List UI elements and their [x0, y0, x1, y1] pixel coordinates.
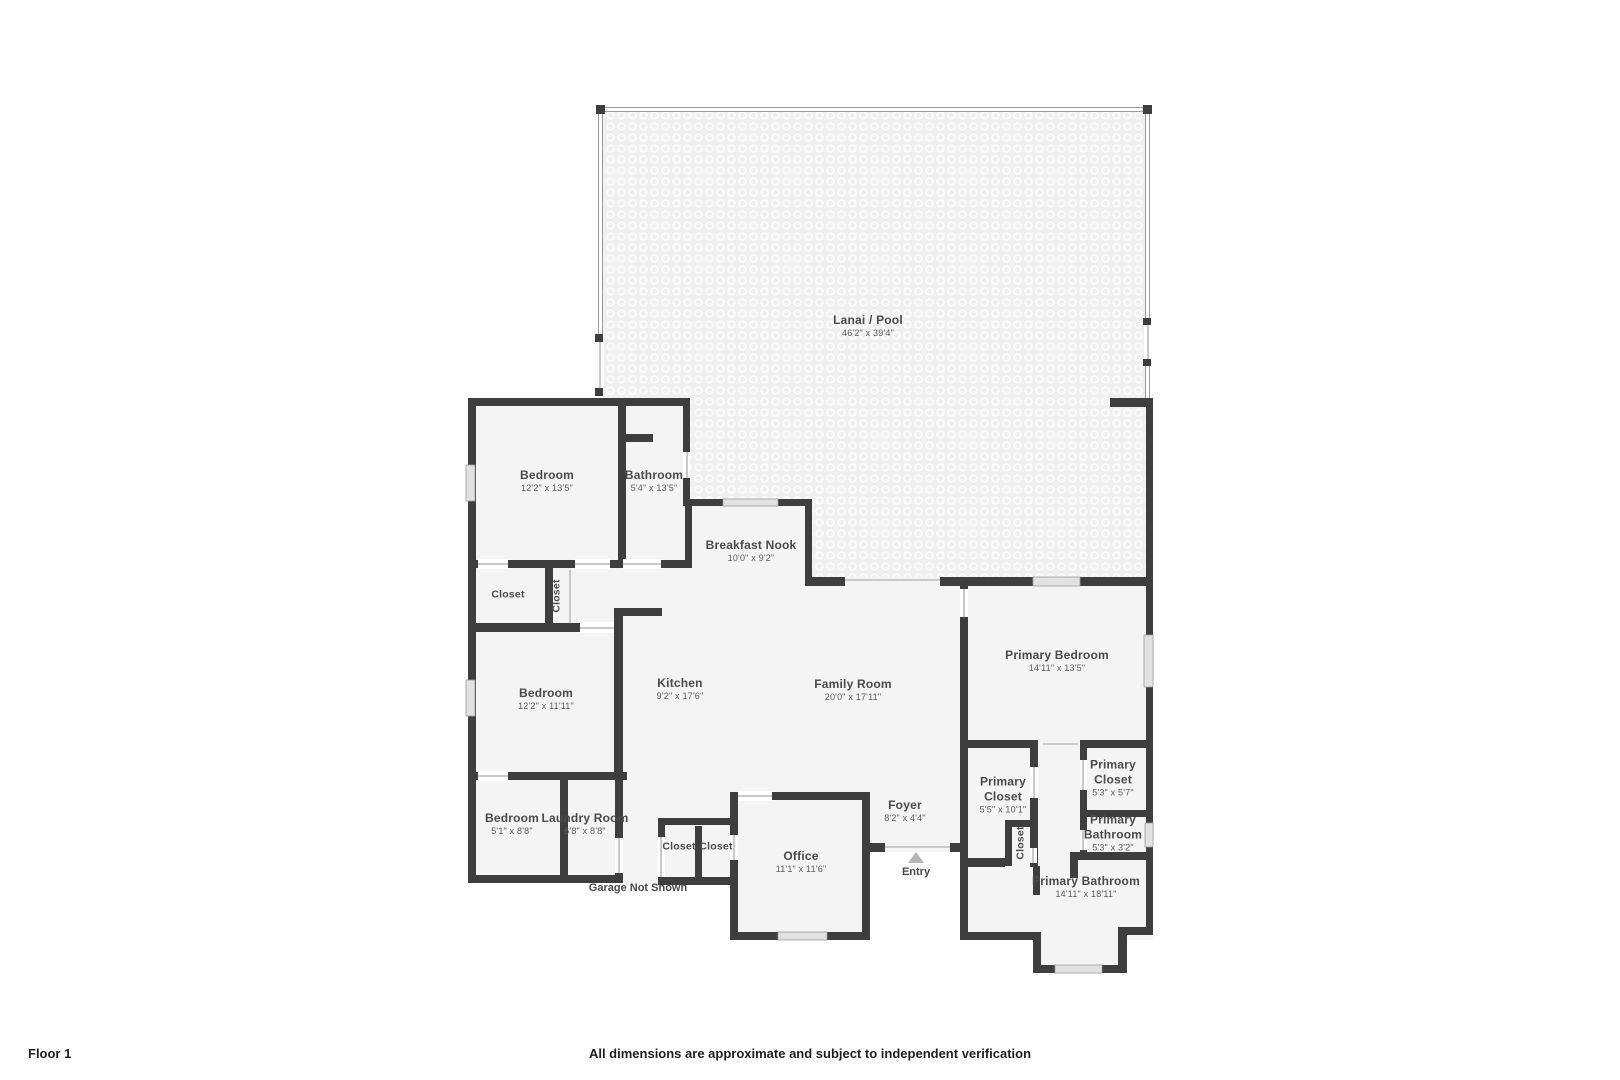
room-name: Lanai / Pool — [833, 313, 903, 328]
room-name: Family Room — [814, 677, 892, 692]
room-label-office: Office 11'1" x 11'6" — [776, 849, 827, 875]
room-name: Closet — [699, 840, 732, 853]
room-dims: 14'11" x 13'5" — [1005, 663, 1109, 674]
room-name: Bedroom — [520, 468, 574, 483]
room-dims: 11'1" x 11'6" — [776, 864, 827, 875]
room-name: Laundry Room — [541, 811, 628, 826]
disclaimer-text: All dimensions are approximate and subje… — [589, 1046, 1031, 1061]
room-label-bedroom-middle: Bedroom 12'2" x 11'11" — [518, 686, 574, 712]
room-label-closet-office-a: Closet — [662, 840, 695, 853]
room-name: Bathroom — [625, 468, 683, 483]
room-dims: 5'5" x 10'1" — [967, 804, 1039, 815]
room-label-family-room: Family Room 20'0" x 17'11" — [814, 677, 892, 703]
room-label-lanai: Lanai / Pool 46'2" x 39'4" — [833, 313, 903, 339]
room-label-kitchen: Kitchen 9'2" x 17'6" — [657, 676, 704, 702]
room-dims: 5'3" x 3'2" — [1073, 842, 1153, 853]
room-name: Closet — [550, 579, 563, 612]
room-label-primary-bathroom-small: Primary Bathroom 5'3" x 3'2" — [1073, 812, 1153, 853]
room-label-primary-closet-left: Primary Closet 5'5" x 10'1" — [967, 774, 1039, 815]
room-label-primary-closet-right: Primary Closet 5'3" x 5'7" — [1082, 757, 1144, 798]
room-label-closet-primary-small: Closet — [1014, 826, 1027, 859]
room-label-primary-bathroom-large: Primary Bathroom 14'11" x 18'11" — [1032, 874, 1140, 900]
room-label-bedroom-bottom: Bedroom 5'1" x 8'8" — [485, 811, 539, 837]
room-dims: 46'2" x 39'4" — [833, 328, 903, 339]
room-name: Primary Bathroom — [1073, 812, 1153, 842]
entry-label: Entry — [902, 866, 930, 878]
room-label-foyer: Foyer 8'2" x 4'4" — [884, 798, 926, 824]
room-name: Primary Bedroom — [1005, 648, 1109, 663]
room-dims: 6'8" x 8'8" — [541, 826, 628, 837]
room-label-breakfast-nook: Breakfast Nook 10'0" x 9'2" — [706, 538, 797, 564]
floor-plan-drawing — [0, 0, 1620, 1080]
entry-arrow-icon — [908, 852, 924, 863]
room-label-laundry-room: Laundry Room 6'8" x 8'8" — [541, 811, 628, 837]
room-label-primary-bedroom: Primary Bedroom 14'11" x 13'5" — [1005, 648, 1109, 674]
room-dims: 10'0" x 9'2" — [706, 553, 797, 564]
room-dims: 5'3" x 5'7" — [1082, 787, 1144, 798]
room-name: Primary Bathroom — [1032, 874, 1140, 889]
room-name: Closet — [662, 840, 695, 853]
garage-note: Garage Not Shown — [589, 882, 687, 894]
room-name: Bedroom — [518, 686, 574, 701]
room-name: Primary Closet — [1082, 757, 1144, 787]
room-name: Primary Closet — [967, 774, 1039, 804]
room-dims: 9'2" x 17'6" — [657, 691, 704, 702]
room-dims: 14'11" x 18'11" — [1032, 889, 1140, 900]
room-name: Breakfast Nook — [706, 538, 797, 553]
room-name: Kitchen — [657, 676, 704, 691]
room-name: Bedroom — [485, 811, 539, 826]
room-dims: 12'2" x 11'11" — [518, 701, 574, 712]
room-dims: 12'2" x 13'5" — [520, 483, 574, 494]
room-label-closet-hall-a: Closet — [491, 588, 524, 601]
room-label-closet-hall-b: Closet — [550, 579, 563, 612]
room-name: Foyer — [884, 798, 926, 813]
floor-plan-page: Lanai / Pool 46'2" x 39'4" Bedroom 12'2"… — [0, 0, 1620, 1080]
room-dims: 5'4" x 13'5" — [625, 483, 683, 494]
room-label-closet-office-b: Closet — [699, 840, 732, 853]
floor-label: Floor 1 — [28, 1046, 71, 1061]
room-name: Closet — [1014, 826, 1027, 859]
room-label-bathroom: Bathroom 5'4" x 13'5" — [625, 468, 683, 494]
room-dims: 5'1" x 8'8" — [485, 826, 539, 837]
room-dims: 8'2" x 4'4" — [884, 813, 926, 824]
room-label-bedroom-top: Bedroom 12'2" x 13'5" — [520, 468, 574, 494]
room-name: Office — [776, 849, 827, 864]
room-name: Closet — [491, 588, 524, 601]
room-dims: 20'0" x 17'11" — [814, 692, 892, 703]
